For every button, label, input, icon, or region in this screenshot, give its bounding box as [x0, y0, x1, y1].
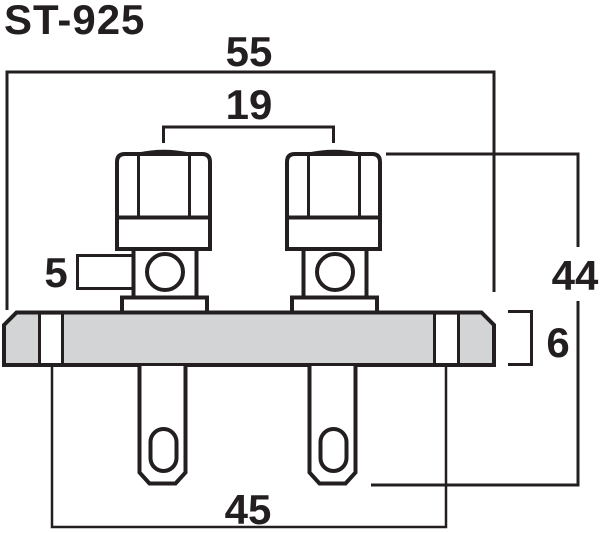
solder-lug-left [140, 366, 186, 484]
dim-label-19: 19 [226, 81, 273, 128]
model-title: ST-925 [4, 0, 145, 43]
dim-label-55: 55 [226, 28, 273, 75]
plate-hole-right [436, 315, 457, 363]
solder-lug-right [310, 366, 356, 484]
post-knob-left [117, 154, 210, 249]
dim-5-bracket [78, 256, 134, 289]
drawing-canvas: ST-925 55 19 5 44 6 45 [0, 0, 600, 533]
binding-post-right [287, 151, 380, 313]
technical-drawing: ST-925 55 19 5 44 6 45 [0, 0, 600, 533]
dim-label-44: 44 [552, 252, 599, 299]
plate-body [4, 313, 494, 366]
wire-hole-left [147, 254, 183, 290]
dim-label-45: 45 [225, 486, 272, 533]
lug-slot-right [321, 429, 347, 471]
dim-label-6: 6 [546, 319, 569, 366]
dim-6-bracket [508, 312, 532, 365]
labels: ST-925 55 19 5 44 6 45 [4, 0, 599, 533]
line-art [4, 72, 578, 527]
dim-label-5: 5 [44, 249, 67, 296]
plate-hole-left [41, 315, 61, 363]
post-knob-right [287, 154, 380, 249]
wire-hole-right [317, 254, 353, 290]
terminal-plate [4, 313, 494, 366]
dim-19-line [164, 127, 334, 143]
lug-slot-left [151, 429, 177, 471]
